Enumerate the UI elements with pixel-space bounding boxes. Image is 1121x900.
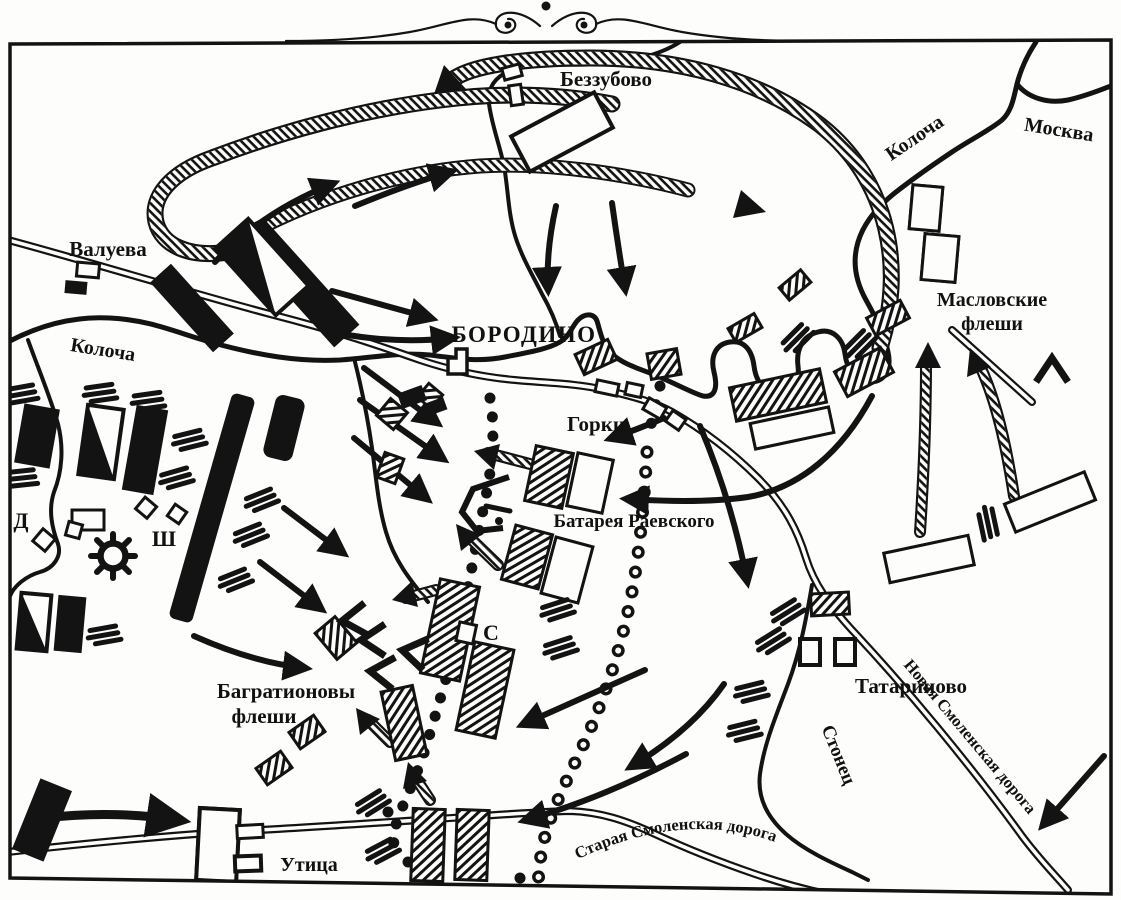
french-arrow <box>612 203 625 288</box>
french-infantry-bar <box>262 393 307 462</box>
russian-cavalry-unit <box>921 234 959 283</box>
label-bagration-fleshi-line1: Багратионовы <box>217 679 355 703</box>
artillery-icon <box>540 599 575 622</box>
artillery-icon <box>172 430 206 451</box>
fleche-chevron-icon <box>369 657 392 687</box>
raevsky-redoubt-icon <box>462 477 510 531</box>
russian-arrow <box>915 342 941 532</box>
french-arrow <box>44 814 178 820</box>
map-content: Беззубово Валуева Колоча Колоча Москва Б… <box>4 42 1111 897</box>
svg-text:Старая Смоленская дорога: Старая Смоленская дорога <box>571 814 779 863</box>
label-bezzubovo: Беззубово <box>560 67 652 91</box>
russian-infantry-bar <box>411 808 445 881</box>
french-arrow <box>524 670 645 724</box>
village-building <box>397 385 427 409</box>
russian-infantry-bar <box>810 592 849 616</box>
artillery-icon <box>755 627 790 656</box>
village-building <box>235 856 262 872</box>
village-building <box>65 521 82 538</box>
label-kolocha-west: Колоча <box>69 334 137 366</box>
artillery-icon <box>233 523 268 548</box>
label-bagration-fleshi-line2: флеши <box>232 704 297 728</box>
village-building <box>800 639 820 665</box>
label-utitsa: Утица <box>280 854 338 876</box>
village-building <box>167 504 186 523</box>
shevardino-redoubt-icon <box>91 534 135 578</box>
village-building <box>64 280 87 295</box>
label-borodino: БОРОДИНО <box>451 322 596 347</box>
label-valueva: Валуева <box>69 237 147 261</box>
label-semyonovskoye-initial: С <box>483 620 499 645</box>
village-building <box>33 529 56 552</box>
french-arrow <box>526 754 686 820</box>
russian-infantry-bar <box>867 300 910 335</box>
label-stonets: Стонец <box>817 722 860 788</box>
artillery-icon <box>727 721 761 742</box>
artillery-icon <box>218 568 253 593</box>
artillery-icon <box>244 488 279 513</box>
russian-arrow <box>967 348 1014 496</box>
french-infantry-bar <box>14 403 60 468</box>
russian-cavalry-unit <box>1005 472 1096 532</box>
battle-map-page: Беззубово Валуева Колоча Колоча Москва Б… <box>0 0 1121 900</box>
french-arrow <box>194 636 304 668</box>
artillery-icon <box>978 506 998 540</box>
label-kolocha-east: Колоча <box>881 111 947 166</box>
village-building <box>135 497 156 518</box>
russian-jaeger-unit <box>256 751 292 785</box>
dot <box>383 807 394 818</box>
label-maslovskie-fleshi-line1: Масловские <box>937 289 1047 311</box>
label-moskva-river: Москва <box>1023 114 1095 147</box>
label-old-smolensk-road: Старая Смоленская дорога <box>571 814 779 863</box>
artillery-icon <box>87 626 121 645</box>
russian-infantry-bar <box>525 446 574 509</box>
label-doronino-initial: Д <box>13 508 28 533</box>
moskva-river <box>1017 84 1111 101</box>
label-new-smolensk-road: Новая Смоленская дорога <box>900 655 1040 817</box>
fortification-chevron-icon <box>1038 358 1066 379</box>
russian-infantry-bar <box>647 349 681 380</box>
label-maslovskie-fleshi-line2: флеши <box>961 313 1023 335</box>
russian-jaeger-unit <box>728 314 762 343</box>
russian-cavalry-unit <box>909 185 943 231</box>
french-cavalry-unit <box>17 593 52 651</box>
artillery-icon <box>83 384 117 402</box>
village-building <box>76 262 99 278</box>
label-gorki: Горки <box>567 412 625 436</box>
borodino-church-icon <box>448 349 467 374</box>
french-arrow <box>548 206 556 288</box>
russian-infantry-bar <box>455 809 489 880</box>
russian-infantry-bar <box>381 685 427 760</box>
artillery-icon <box>781 322 814 355</box>
artillery-icon <box>131 392 165 410</box>
french-arrow <box>284 508 342 552</box>
label-raevsky-battery: Батарея Раевского <box>554 511 715 532</box>
french-arrow <box>1044 756 1104 824</box>
artillery-icon <box>543 637 578 660</box>
village-building <box>595 380 619 396</box>
french-cavalry-unit <box>78 405 123 479</box>
borodino-battle-map: Беззубово Валуева Колоча Колоча Москва Б… <box>0 0 1121 900</box>
russian-jaeger-unit <box>779 270 811 300</box>
village-building <box>835 639 855 665</box>
header-ornament <box>286 2 806 42</box>
russian-cavalry-unit <box>884 535 974 582</box>
village-building <box>502 64 522 80</box>
village-building <box>625 382 643 397</box>
french-arrow <box>260 562 320 608</box>
french-arrow <box>342 334 452 340</box>
french-arrow <box>632 684 724 766</box>
left-stream <box>10 340 61 596</box>
village-building <box>643 398 667 419</box>
village-building <box>509 84 524 105</box>
french-infantry-bar <box>54 595 87 653</box>
artillery-icon <box>159 467 194 489</box>
russian-cavalry-unit <box>567 453 613 513</box>
artillery-icon <box>734 682 768 703</box>
label-shevardino-initial: Ш <box>152 526 176 551</box>
village-building <box>237 824 264 838</box>
russian-arrow <box>474 444 530 470</box>
artillery-icon <box>770 598 805 627</box>
